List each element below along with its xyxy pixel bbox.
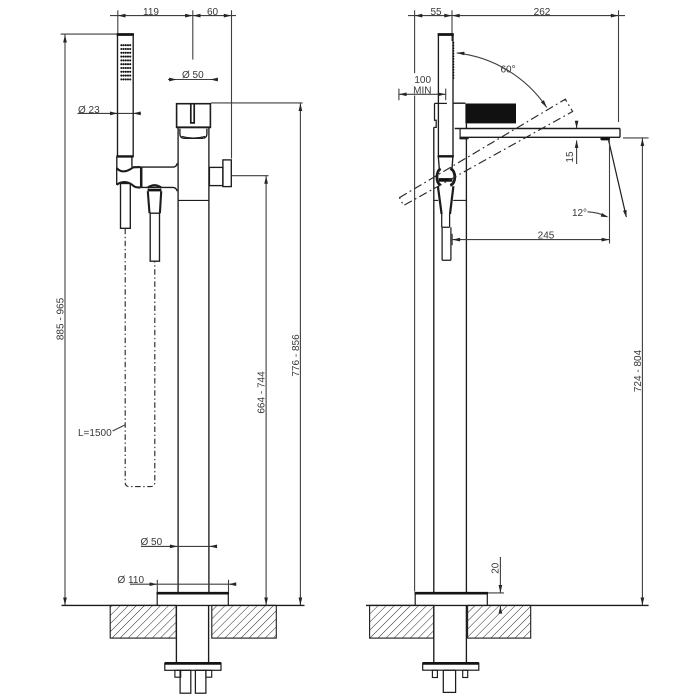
svg-text:119: 119 xyxy=(143,7,159,18)
svg-text:885 - 965: 885 - 965 xyxy=(56,297,67,340)
svg-text:12°: 12° xyxy=(572,208,587,219)
svg-text:L=1500: L=1500 xyxy=(78,428,112,439)
svg-text:60: 60 xyxy=(207,7,219,18)
svg-text:15: 15 xyxy=(565,151,576,163)
svg-text:664 - 744: 664 - 744 xyxy=(257,371,268,414)
svg-text:262: 262 xyxy=(534,7,551,18)
svg-text:55: 55 xyxy=(430,7,442,18)
svg-text:724 - 804: 724 - 804 xyxy=(633,349,644,392)
svg-text:Ø 50: Ø 50 xyxy=(141,537,163,548)
svg-text:776 - 856: 776 - 856 xyxy=(291,334,302,377)
svg-text:Ø 23: Ø 23 xyxy=(78,105,100,116)
svg-text:Ø 50: Ø 50 xyxy=(182,70,204,81)
svg-text:Ø 110: Ø 110 xyxy=(118,575,145,586)
svg-text:245: 245 xyxy=(538,231,555,242)
svg-text:20: 20 xyxy=(490,562,501,574)
svg-text:60°: 60° xyxy=(500,65,515,76)
